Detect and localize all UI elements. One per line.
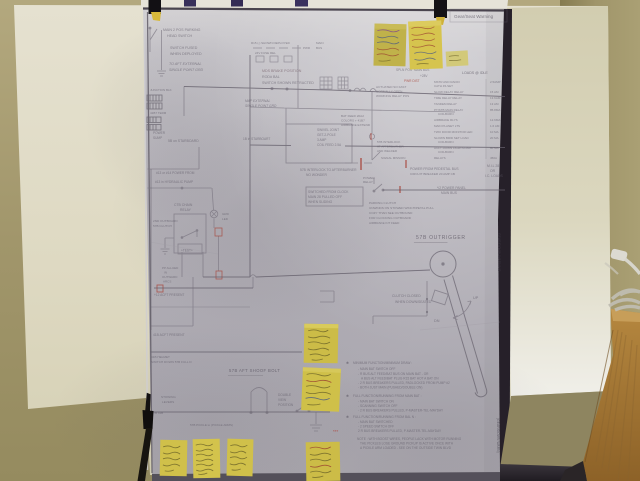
svg-text:***: *** (333, 429, 339, 434)
svg-text:SWITCH DOWN 57B FULL D: SWITCH DOWN 57B FULL D (151, 360, 192, 364)
svg-text:AND WELDER: AND WELDER (377, 149, 398, 153)
svg-text:13 AM: 13 AM (490, 102, 499, 106)
svg-text:MINIMUM FUNCTION/MINIMUM DRAW: MINIMUM FUNCTION/MINIMUM DRAW : (353, 361, 412, 365)
svg-text:450A: 450A (490, 156, 497, 160)
svg-text:AIRBRAKE EXTEND: AIRBRAKE EXTEND (341, 123, 371, 127)
svg-text:+28V: +28V (420, 74, 428, 78)
svg-text:*/2 POWER PANEL: */2 POWER PANEL (437, 186, 466, 190)
svg-text:GRD: GRD (222, 212, 230, 216)
svg-text:1.6 AM: 1.6 AM (490, 124, 500, 128)
svg-text:SWITCH FUSED: SWITCH FUSED (170, 46, 198, 50)
svg-text:BUS: BUS (316, 46, 322, 50)
svg-text:ARCS: ARCS (163, 280, 171, 284)
svg-text:SWITCHED FROM CLOCK: SWITCHED FROM CLOCK (308, 190, 349, 194)
svg-text:80 MA: 80 MA (490, 146, 499, 150)
svg-text:COILBURN: COILBURN (438, 112, 454, 116)
svg-text:CATH 45-SET: CATH 45-SET (434, 84, 453, 88)
svg-text:SINGLE POINT GRD: SINGLE POINT GRD (169, 68, 204, 72)
svg-text:DN: DN (434, 319, 440, 323)
svg-text:HEAD SWITCH: HEAD SWITCH (167, 34, 193, 38)
svg-text:OUTWARD: OUTWARD (162, 275, 178, 279)
svg-text:2.5AMP: 2.5AMP (490, 80, 501, 84)
svg-text:- 2 R BUS BREAKERS PULLED, PAD: - 2 R BUS BREAKERS PULLED, PADLOCKED FRO… (358, 381, 450, 385)
svg-text:OR: OR (490, 169, 496, 173)
svg-text:WORKING RELAY POS: WORKING RELAY POS (376, 94, 409, 98)
svg-text:_______________: _______________ (227, 371, 264, 376)
svg-text:SLOW DELAY RELAY: SLOW DELAY RELAY (434, 90, 464, 94)
svg-text:PWR: PWR (303, 46, 311, 50)
svg-text:+TEST+: +TEST+ (181, 249, 193, 253)
svg-text:CIRCUIT BREAKER 20 AMP CB: CIRCUIT BREAKER 20 AMP CB (410, 172, 455, 176)
svg-text:41B7 TERM: 41B7 TERM (150, 111, 167, 115)
svg-text:12.6MA: 12.6MA (490, 118, 500, 122)
svg-text:AIRBRAKE KIT FEED: AIRBRAKE KIT FEED (369, 221, 400, 225)
svg-text:#13 in HYDRAULIC PUMP: #13 in HYDRAULIC PUMP (155, 180, 193, 184)
svg-text:POWER: POWER (153, 131, 166, 135)
svg-text:FOR CLOCKING OUTBOARD: FOR CLOCKING OUTBOARD (369, 216, 412, 220)
svg-text:PWR DIST: PWR DIST (404, 79, 420, 83)
svg-text:____________: ____________ (413, 238, 448, 244)
svg-text:2 R BUS BREAKERS PULLED, P-MAS: 2 R BUS BREAKERS PULLED, P-MASTER-TEL-MA… (358, 429, 442, 433)
svg-text:DOUBLE: DOUBLE (278, 393, 291, 397)
svg-text:SIGNAL MISSION: SIGNAL MISSION (381, 156, 405, 160)
svg-text:IN: IN (164, 271, 167, 275)
svg-text:COIL FEED 2.5A: COIL FEED 2.5A (317, 143, 342, 147)
svg-text:COILBURN: COILBURN (438, 140, 454, 144)
svg-text:SWITCH SHOWN RETRACTED: SWITCH SHOWN RETRACTED (262, 81, 314, 85)
svg-text:TWO DOOR MONITOR LED: TWO DOOR MONITOR LED (434, 130, 473, 134)
svg-text:MAIN PLANET LTS: MAIN PLANET LTS (434, 124, 460, 128)
svg-text:(GEAR/DOWN WARN): (GEAR/DOWN WARN) (496, 418, 500, 453)
svg-text:SWIVEL JOINT: SWIVEL JOINT (317, 128, 339, 132)
svg-text:AIRBRAKE RLYS: AIRBRAKE RLYS (434, 118, 458, 122)
svg-text:57B INTERLOCK TO AFTERBURNER: 57B INTERLOCK TO AFTERBURNER (300, 168, 357, 172)
svg-text:MDS BRAKE POSITION: MDS BRAKE POSITION (262, 69, 302, 73)
svg-text:- MAIN BAT SWITCHED: - MAIN BAT SWITCHED (358, 420, 393, 424)
svg-text:BAT FEED 20A2: BAT FEED 20A2 (341, 114, 364, 118)
svg-text:CTB CHAIN: CTB CHAIN (174, 203, 193, 207)
svg-text:TANDEM RELAY: TANDEM RELAY (434, 102, 457, 106)
svg-text:M.I.L 28: M.I.L 28 (487, 164, 499, 168)
svg-text:SPLN POS: SPLN POS (396, 68, 412, 72)
svg-text:R15 (-) SHOWN DEPLOYED: R15 (-) SHOWN DEPLOYED (251, 41, 291, 45)
svg-text:A PICKLE ARM LOADED - SEE ON T: A PICKLE ARM LOADED - SEE ON THE OUTSIDE… (360, 446, 452, 450)
svg-text:PARKING CLUTCH: PARKING CLUTCH (369, 201, 396, 205)
svg-text:MAP EXTERNAL: MAP EXTERNAL (245, 99, 271, 103)
svg-text:WHEN DEPLOYED: WHEN DEPLOYED (170, 52, 202, 56)
svg-text:MAIN 2 POS PARKING: MAIN 2 POS PARKING (163, 28, 201, 32)
svg-text:57B CLUTCH: 57B CLUTCH (153, 224, 172, 228)
svg-text:10 MA: 10 MA (490, 130, 499, 134)
svg-text:NOTE : WITH BOOST WIRES, PEOPL: NOTE : WITH BOOST WIRES, PEOPLE LACK WIT… (357, 437, 462, 441)
svg-text:POSITION: POSITION (278, 403, 294, 407)
svg-text:VIEW: VIEW (278, 398, 286, 402)
svg-text:WHEN SLIDING: WHEN SLIDING (308, 200, 333, 204)
svg-text:5B on STARBOARD: 5B on STARBOARD (168, 139, 199, 143)
svg-text:RELAY: RELAY (180, 208, 192, 212)
svg-text:LOADS @ IDLE: LOADS @ IDLE (462, 71, 488, 75)
svg-text:- R BUS ALT FEED/BAT BUS ON MA: - R BUS ALT FEED/BAT BUS ON MAIN BAT - O… (358, 372, 429, 376)
svg-text:LED: LED (222, 217, 229, 221)
svg-text:2ND OUTBOARD: 2ND OUTBOARD (153, 219, 178, 223)
svg-text:COZY THAN SEE OUTBOUND: COZY THAN SEE OUTBOUND (369, 211, 413, 215)
svg-text:WHEN DOWN/SEATED: WHEN DOWN/SEATED (395, 300, 432, 304)
svg-text:GET-2-POLE: GET-2-POLE (317, 133, 336, 137)
svg-text:JUNCTION BLK: JUNCTION BLK (150, 88, 172, 92)
svg-text:15 AM: 15 AM (490, 90, 499, 94)
svg-text:+12 ACFT PRESENT: +12 ACFT PRESENT (154, 293, 184, 297)
svg-text:RELAY: RELAY (363, 180, 373, 184)
svg-text:SUMP: SUMP (153, 136, 162, 140)
svg-text:NO WONDER: NO WONDER (306, 173, 327, 177)
svg-text:- BOTH JUST MAIN (PUSHED/DOUBL: - BOTH JUST MAIN (PUSHED/DOUBLE ON) (358, 386, 422, 390)
svg-text:3 AMP: 3 AMP (317, 138, 326, 142)
svg-text:57B PICKLE to (PICKLE ARMS): 57B PICKLE to (PICKLE ARMS) (190, 423, 233, 427)
svg-text:- 2 R BUS BREAKERS PULLED, P-M: - 2 R BUS BREAKERS PULLED, P-MASTER-TEL-… (358, 409, 444, 413)
svg-text:LEVERS: LEVERS (162, 400, 174, 404)
svg-text:85.8MA: 85.8MA (490, 108, 500, 112)
svg-text:41B ACFT PRESENT: 41B ACFT PRESENT (153, 333, 185, 337)
svg-text:- SCANNING SWITCH OFF: - SCANNING SWITCH OFF (358, 404, 398, 408)
svg-text:ACTUATED SO FAST: ACTUATED SO FAST (376, 85, 406, 89)
svg-text:57B INTERLOCK: 57B INTERLOCK (377, 140, 400, 144)
svg-text:COLORS + 41B7: COLORS + 41B7 (341, 119, 365, 123)
svg-text:UNWINDS ON STOWED WINCH/PETAL: UNWINDS ON STOWED WINCH/PETAL PULL (369, 206, 434, 210)
svg-text:ROD# BAL: ROD# BAL (262, 75, 280, 79)
svg-text:GEAR/DOWN WARNING: GEAR/DOWN WARNING (497, 233, 501, 272)
svg-text:FULL FUNCTION/RUNNING FROM MAI: FULL FUNCTION/RUNNING FROM MAIN BAT : (353, 394, 422, 398)
svg-text:41B HELMET: 41B HELMET (151, 355, 170, 359)
svg-text:UP: UP (473, 296, 479, 300)
svg-text:24V FUSE REL: 24V FUSE REL (255, 51, 276, 55)
svg-text:- MAIN BAT SWITCH OFF: - MAIN BAT SWITCH OFF (358, 367, 395, 371)
svg-text:1B in STARBOART: 1B in STARBOART (243, 137, 270, 141)
svg-text:THE PICKLES LOSE GROUND PICKUP: THE PICKLES LOSE GROUND PICKUP IS ACTIVE… (360, 442, 454, 446)
svg-text:MAIN 28 PULLED OFF: MAIN 28 PULLED OFF (308, 195, 342, 199)
svg-text:Gear/Seat Warning: Gear/Seat Warning (454, 14, 494, 19)
svg-text:CLUTCH CLOSED: CLUTCH CLOSED (392, 294, 421, 298)
svg-text:#13 or #14 POWER FROM: #13 or #14 POWER FROM (156, 171, 195, 175)
svg-text:RELAYS: RELAYS (434, 156, 446, 160)
svg-text:TIME DELAY RELAY: TIME DELAY RELAY (434, 96, 462, 100)
svg-text:MAIN: MAIN (316, 41, 324, 45)
svg-text:STOWING: STOWING (161, 395, 176, 399)
svg-text:TO AFT EXTERNAL: TO AFT EXTERNAL (169, 62, 202, 66)
svg-text:POWER FROM PEDESTAL BUS: POWER FROM PEDESTAL BUS (410, 167, 459, 171)
svg-text:FULL FUNCTION/RUNNING FROM BAL: FULL FUNCTION/RUNNING FROM BAL N : (353, 415, 416, 419)
svg-text:20 MA: 20 MA (490, 136, 499, 140)
svg-text:MAIN BUS: MAIN BUS (441, 191, 458, 195)
svg-text:A BUS ALT FEED/BAT PLUG R15 BA: A BUS ALT FEED/BAT PLUG R15 BAT HOT A BA… (361, 377, 439, 381)
svg-text:- 2 SPEED SWITCH OFF: - 2 SPEED SWITCH OFF (358, 425, 394, 429)
svg-text:- MAIN BAT SWITCH ON: - MAIN BAT SWITCH ON (358, 400, 395, 404)
svg-text:PP ALLUED: PP ALLUED (162, 266, 179, 270)
svg-text:COILBURN: COILBURN (438, 150, 454, 154)
svg-text:I.C. LOADS: I.C. LOADS (485, 174, 503, 178)
